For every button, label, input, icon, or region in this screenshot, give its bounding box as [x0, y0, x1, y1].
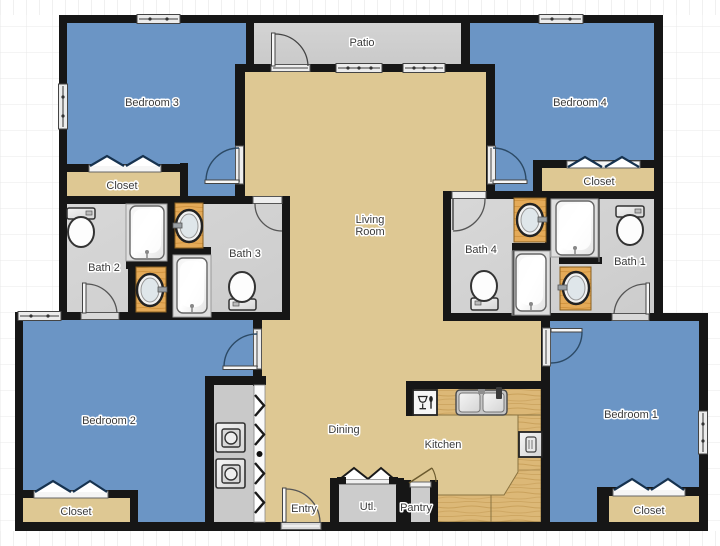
svg-text:Kitchen: Kitchen [425, 439, 462, 451]
svg-text:Bedroom 1: Bedroom 1 [604, 409, 658, 421]
svg-text:Bath 1: Bath 1 [614, 256, 646, 268]
svg-text:Bath 3: Bath 3 [229, 248, 261, 260]
svg-text:Closet: Closet [633, 505, 664, 517]
svg-text:Closet: Closet [60, 506, 91, 518]
svg-text:Bedroom 4: Bedroom 4 [553, 97, 607, 109]
svg-text:Bedroom 2: Bedroom 2 [82, 415, 136, 427]
svg-text:Closet: Closet [106, 180, 137, 192]
svg-text:Patio: Patio [349, 37, 374, 49]
svg-text:Room: Room [355, 226, 384, 238]
svg-text:Entry: Entry [291, 503, 317, 515]
svg-text:Closet: Closet [583, 176, 614, 188]
svg-text:Bedroom 3: Bedroom 3 [125, 97, 179, 109]
svg-text:Dining: Dining [328, 424, 359, 436]
svg-text:Utl.: Utl. [360, 501, 377, 513]
svg-text:Pantry: Pantry [400, 502, 432, 514]
svg-text:Bath 2: Bath 2 [88, 262, 120, 274]
svg-text:Bath 4: Bath 4 [465, 244, 497, 256]
svg-text:Living: Living [356, 214, 385, 226]
